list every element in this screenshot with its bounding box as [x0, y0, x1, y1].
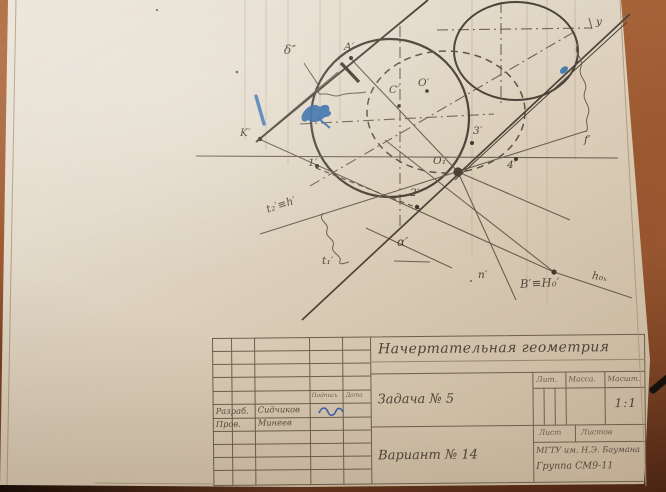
point-b-label: B′≡H₀′ — [520, 275, 560, 291]
geometry-drawing — [0, 0, 666, 492]
ink-dot — [559, 65, 570, 76]
point-a-label: A′ — [344, 41, 355, 53]
ink-marks — [256, 65, 569, 416]
sheet-frame — [7, 0, 646, 486]
point-3-label: 3′ — [473, 125, 483, 137]
photo-of-drawing-sheet: Начертательная геометрия Задача № 5 Вари… — [0, 0, 666, 492]
construction-lines — [196, 18, 632, 300]
trace-f-label: f′ — [584, 134, 591, 146]
ink-blot — [301, 105, 331, 122]
axis-h0x-label: h₀ₓ — [591, 270, 608, 284]
ink-stroke — [256, 96, 264, 124]
angle-alpha-label: α′ — [397, 235, 408, 249]
axis-y-label: y — [596, 16, 602, 28]
point-o1-label: O₁′ — [433, 155, 449, 167]
point-k-label: K′ — [240, 127, 251, 139]
right-base-circle — [454, 2, 578, 100]
point-o-label: O′ — [418, 77, 430, 89]
dust-specks — [156, 9, 472, 282]
plane-delta-label: δ″ — [284, 43, 296, 57]
line-t1-label: t₁′ — [322, 255, 334, 267]
point-c-label: C′ — [389, 84, 400, 96]
ink-signature — [319, 408, 343, 415]
line-n-label: n′ — [478, 269, 488, 281]
point-2-label: 2′ — [410, 187, 420, 199]
point-4-label: 4′ — [507, 159, 517, 171]
point-1-label: 1′ — [308, 157, 318, 169]
centerlines — [300, 2, 592, 228]
break-squiggles — [304, 44, 589, 264]
